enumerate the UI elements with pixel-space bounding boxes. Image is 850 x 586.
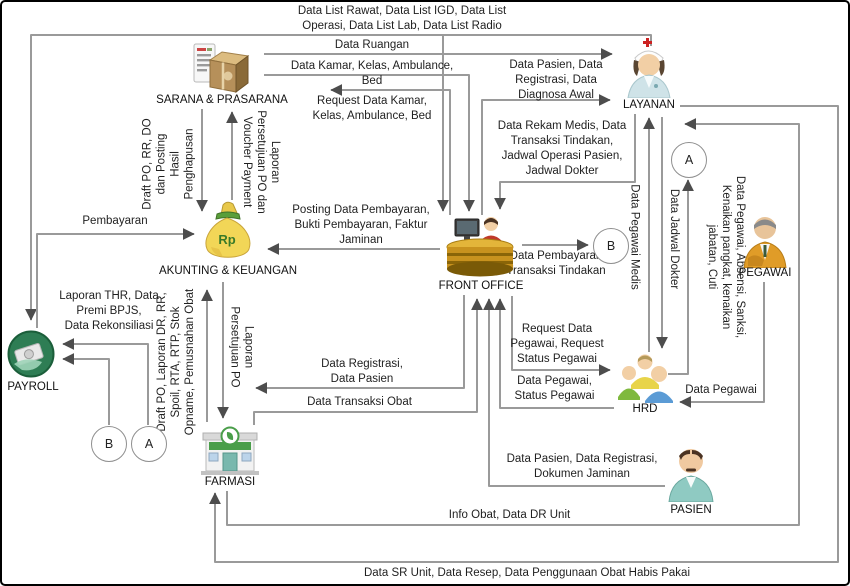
pegawai-label: PEGAWAI [736, 266, 794, 280]
akunting-label: AKUNTING & KEUANGAN [152, 264, 304, 278]
connector-a-top: A [671, 142, 707, 178]
hrd-icon [616, 353, 674, 408]
label-data-sr-unit: Data SR Unit, Data Resep, Data Penggunaa… [362, 566, 692, 581]
akunting-icon: Rp [199, 201, 255, 268]
svg-text:Rp: Rp [218, 232, 235, 247]
hrd-label: HRD [629, 402, 661, 416]
flow-b-to-payroll [63, 359, 109, 425]
label-top-list: Data List Rawat, Data List IGD, Data Lis… [287, 4, 517, 34]
farmasi-icon [199, 425, 261, 480]
label-pasien-registrasi-jaminan: Data Pasien, Data Registrasi, Dokumen Ja… [494, 452, 670, 482]
payroll-label: PAYROLL [4, 380, 62, 394]
label-registrasi-pasien: Data Registrasi, Data Pasien [302, 357, 422, 387]
label-pegawai-status: Data Pegawai, Status Pegawai [502, 374, 607, 404]
label-laporan-persetujuan-po: Laporan Persetujuan PO [202, 292, 282, 402]
label-data-ruangan: Data Ruangan [302, 38, 442, 53]
pasien-icon [663, 446, 719, 507]
front-office-label: FRONT OFFICE [437, 279, 525, 293]
connector-a-left: A [131, 426, 167, 462]
sarana-icon [192, 38, 254, 99]
pasien-label: PASIEN [664, 503, 718, 517]
label-rekam-medis: Data Rekam Medis, Data Transaksi Tindaka… [467, 119, 657, 179]
label-transaksi-obat: Data Transaksi Obat [297, 395, 422, 410]
label-info-obat: Info Obat, Data DR Unit [442, 508, 577, 523]
pegawai-icon [738, 214, 792, 273]
layanan-label: LAYANAN [611, 98, 687, 112]
label-data-kamar: Data Kamar, Kelas, Ambulance, Bed [287, 59, 457, 89]
farmasi-label: FARMASI [199, 475, 261, 489]
connector-b-mid: B [593, 228, 629, 264]
label-posting-pembayaran: Posting Data Pembayaran, Bukti Pembayara… [280, 203, 442, 248]
layanan-icon [620, 38, 680, 103]
label-data-pegawai: Data Pegawai [685, 383, 757, 398]
sarana-label: SARANA & PRASARANA [147, 93, 297, 107]
label-data-pasien-registrasi: Data Pasien, Data Registrasi, Data Diagn… [500, 58, 612, 103]
label-request-pegawai: Request Data Pegawai, Request Status Peg… [502, 322, 612, 367]
front-office-icon [439, 213, 521, 282]
dfd-diagram: Data List Rawat, Data List IGD, Data Lis… [0, 0, 850, 586]
connector-b-left: B [91, 426, 127, 462]
label-request-kamar: Request Data Kamar, Kelas, Ambulance, Be… [297, 94, 447, 124]
payroll-icon [6, 330, 58, 385]
